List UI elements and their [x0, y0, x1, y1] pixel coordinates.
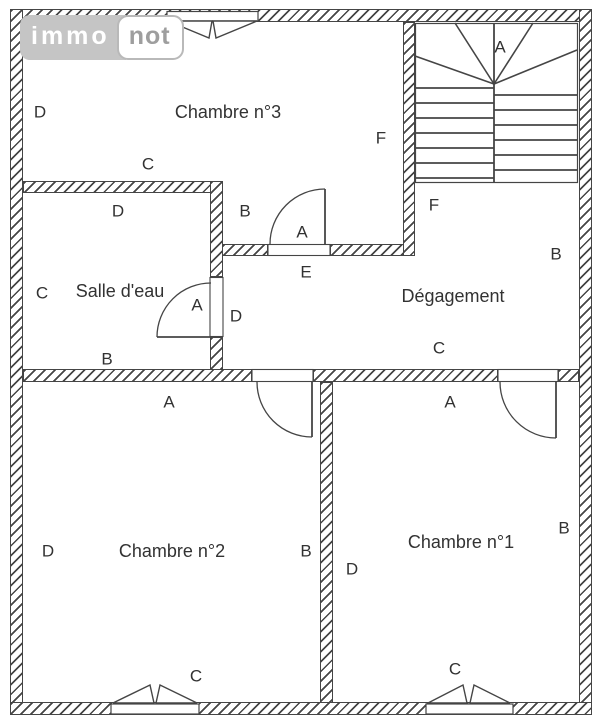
- room-name-label: Dégagement: [401, 287, 504, 305]
- logo-not-segment: not: [117, 15, 184, 60]
- room-name-label: Chambre n°3: [175, 103, 281, 121]
- wall-letter-label: F: [429, 197, 439, 214]
- wall-letter-label: A: [163, 394, 174, 411]
- floor-plan: EADChambre n°3FCFDBABECSalle d'eauADégag…: [0, 0, 605, 728]
- wall-letter-label: F: [376, 130, 386, 147]
- wall-letter-label: A: [296, 224, 307, 241]
- wall-letter-label: A: [494, 39, 505, 56]
- wall-letter-label: A: [191, 297, 202, 314]
- immonot-logo: immo not: [20, 15, 184, 60]
- wall-letter-label: A: [444, 394, 455, 411]
- wall-letter-label: D: [42, 543, 54, 560]
- logo-immo-segment: immo: [20, 15, 126, 60]
- labels-layer: EADChambre n°3FCFDBABECSalle d'eauADégag…: [0, 0, 605, 728]
- wall-letter-label: D: [34, 104, 46, 121]
- room-name-label: Chambre n°1: [408, 533, 514, 551]
- wall-letter-label: C: [433, 340, 445, 357]
- room-name-label: Chambre n°2: [119, 542, 225, 560]
- wall-letter-label: B: [239, 203, 250, 220]
- wall-letter-label: C: [190, 668, 202, 685]
- wall-letter-label: C: [142, 156, 154, 173]
- wall-letter-label: C: [449, 661, 461, 678]
- wall-letter-label: E: [300, 264, 311, 281]
- wall-letter-label: B: [558, 520, 569, 537]
- wall-letter-label: D: [112, 203, 124, 220]
- room-name-label: Salle d'eau: [76, 282, 165, 300]
- wall-letter-label: D: [230, 308, 242, 325]
- wall-letter-label: B: [550, 246, 561, 263]
- wall-letter-label: D: [346, 561, 358, 578]
- wall-letter-label: B: [300, 543, 311, 560]
- wall-letter-label: B: [101, 351, 112, 368]
- wall-letter-label: C: [36, 285, 48, 302]
